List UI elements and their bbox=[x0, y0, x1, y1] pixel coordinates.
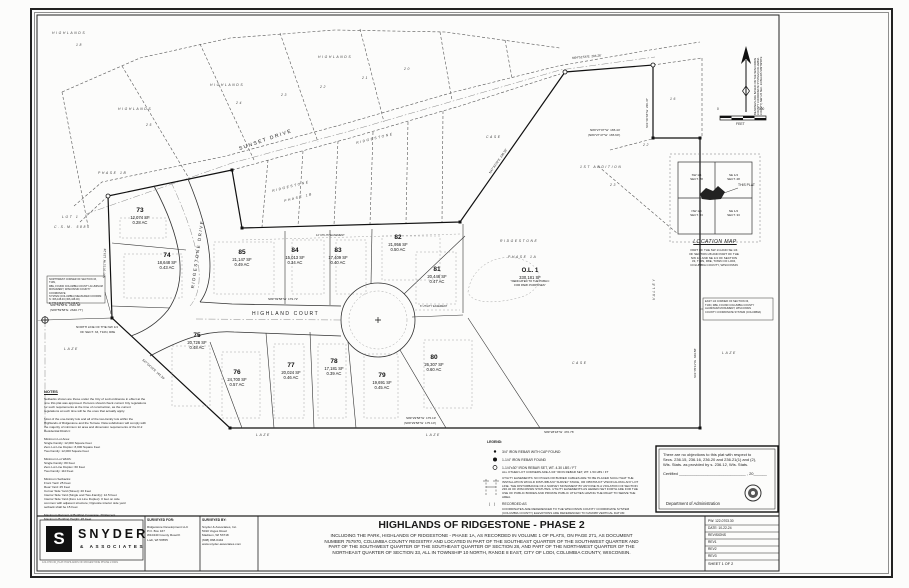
bearing-label: S89°29'58"W 175.19' bbox=[406, 416, 436, 420]
plat-title: HIGHLANDS OF RIDGESTONE - PHASE 2 bbox=[260, 519, 703, 531]
legend-symbols bbox=[483, 450, 499, 495]
legend-utility-easement-note: UTILITY EASEMENTS: NO POLES OR BURIED CA… bbox=[502, 477, 652, 500]
adjacent-plat-label: HIGHLANDS bbox=[210, 84, 244, 88]
adjacent-lot-number: 16 bbox=[670, 98, 677, 102]
this-plat-label: THIS PLAT bbox=[738, 184, 755, 188]
park-phase-label: PHASE 1A bbox=[508, 256, 537, 260]
bearing-label: N89°27'07"W 165.44' bbox=[590, 128, 620, 132]
lot-number: 80 bbox=[406, 354, 462, 362]
lot-80-label: 8026,307 SF0.60 AC bbox=[406, 354, 462, 372]
plat-sheet: SUNSET DRIVE RIDGESTONE DRIVE HIGHLAND C… bbox=[0, 0, 909, 588]
bearing-label: (N89°27'47"W 165.60') bbox=[588, 133, 620, 137]
lot-number: 84 bbox=[267, 247, 323, 255]
certification-text: There are no objections to this plat wit… bbox=[663, 452, 773, 468]
section-line-label: OF SECT. 33, T10N, R8E bbox=[80, 330, 115, 334]
bearing-label: S89°28'18"W 470.76' bbox=[544, 430, 574, 434]
certification-signature-line: Certified ______________________________… bbox=[663, 472, 767, 477]
firm-name: SNYDER bbox=[78, 527, 148, 541]
lot-area-ac: 0.50 AC bbox=[370, 247, 426, 252]
adjacent-lot-number: 22 bbox=[643, 144, 650, 148]
plat-subtitle: INCLUDING THE PARK, HIGHLANDS OF RIDGEST… bbox=[260, 533, 703, 556]
lot-number: 74 bbox=[139, 252, 195, 260]
lot-area-ac: 0.34 AC bbox=[267, 260, 323, 265]
adjacent-parcel-label: LOT 1 bbox=[62, 216, 79, 220]
rebar-set-icon bbox=[493, 466, 497, 470]
bearing-label: (S89°59'58"E 2640.77') bbox=[50, 308, 83, 312]
surveyed-by-label: SURVEYED BY: bbox=[202, 519, 226, 523]
lot-84-label: 8415,013 SF0.34 AC bbox=[267, 247, 323, 265]
park-plat-label: RIDGESTONE bbox=[500, 240, 538, 244]
lot-area-ac: 0.57 AC bbox=[209, 382, 265, 387]
legend-item-rebar-found: 1-1/4" IRON REBAR FOUND bbox=[502, 458, 546, 462]
lot-79-label: 7919,691 SF0.45 AC bbox=[354, 372, 410, 390]
lot-area-ac: 0.60 AC bbox=[406, 367, 462, 372]
project-number: PW: 122-0703.30 bbox=[708, 519, 734, 523]
adjacent-phase-label: PHASE 1B bbox=[98, 172, 127, 176]
recorded-as-symbol: ( ) bbox=[489, 502, 495, 506]
adjacent-plat-label: HIGHLANDS bbox=[52, 32, 86, 36]
adjacent-owner-label: LAZE bbox=[722, 352, 737, 356]
easement-label: 6' UTILITY EASEMENT bbox=[420, 305, 447, 308]
location-map-title: LOCATION MAP bbox=[678, 240, 752, 246]
surveyed-by-address: Snyder & Associates, Inc. 5010 Voges Roa… bbox=[202, 525, 256, 546]
plat-date: DATE: 10-22-24 bbox=[708, 526, 732, 530]
adjacent-plat-label: 1ST ADDITION bbox=[580, 166, 622, 170]
adjacent-owner-label: CASE bbox=[486, 136, 502, 140]
adjacent-lot-number: 18 bbox=[76, 44, 83, 48]
easement-detail-diagram bbox=[483, 479, 499, 495]
sheet-number: SHEET 1 OF 2 bbox=[708, 562, 733, 566]
notes-body: Setbacks shown are those under the City … bbox=[44, 397, 156, 521]
east-corner-monument-note: EAST 1/4 CORNER OF SECTION 33, T10N, R8E… bbox=[705, 300, 772, 314]
location-map-caption: PART OF THE SW 1/4 AND SE 1/4 OF SECTION… bbox=[664, 249, 764, 268]
adjacent-lot-number: 23 bbox=[281, 94, 288, 98]
scale-bar bbox=[720, 116, 766, 120]
adjacent-plat-label: HIGHLANDS bbox=[318, 56, 352, 60]
outlot-dedication-note: "DEDICATED TO THE PUBLIC FOR PARK PURPOS… bbox=[498, 280, 562, 287]
lot-area-ac: 0.43 AC bbox=[139, 265, 195, 270]
this-plat-shape bbox=[700, 186, 725, 200]
street-label-highland: HIGHLAND COURT bbox=[252, 312, 319, 318]
legend-item-rebar-set-2: ALL OTHER LOT CORNERS ARE A 3/4" IRON RE… bbox=[502, 470, 608, 474]
legend-title: LEGEND: bbox=[487, 440, 502, 444]
locmap-cell-nw33: NW 1/4 SECT. 33 bbox=[677, 210, 717, 217]
adjacent-plat-label: HIGHLANDS bbox=[118, 108, 152, 112]
adjacent-owner-label: LAZE bbox=[64, 348, 79, 352]
adjacent-owner-label: VALLEY bbox=[653, 278, 657, 300]
locmap-cell-se28: SE 1/4 SECT. 28 bbox=[714, 174, 754, 181]
north-arrow bbox=[741, 46, 751, 112]
lot-81-label: 8120,446 SF0.47 AC bbox=[409, 266, 465, 284]
lot-number: 85 bbox=[214, 249, 270, 257]
lot-area-ac: 0.48 AC bbox=[169, 345, 225, 350]
bearing-basis-note: BEARINGS ARE BASED ON THE WISCONSIN COUN… bbox=[754, 55, 764, 115]
snyder-logo-icon: S bbox=[46, 526, 72, 552]
revision-2: REV2 bbox=[708, 547, 717, 551]
adjacent-owner-label: CASE bbox=[572, 362, 588, 366]
bearing-label: S89°39'58"W 179.72' bbox=[268, 297, 298, 301]
legend-item-rebar-set: 1-1/4"x30" IRON REBAR SET, WT. 4.30 LBS … bbox=[502, 466, 576, 470]
locmap-cell-ne33: NE 1/4 SECT. 33 bbox=[714, 210, 754, 217]
scale-unit-label: FEET bbox=[736, 123, 745, 127]
surveyed-for-address: Ridgestone Development LLC P.O. Box 167 … bbox=[147, 525, 197, 542]
locmap-cell-sw28: SW 1/4 SECT. 28 bbox=[677, 174, 717, 181]
adjacent-lot-number: 24 bbox=[236, 102, 243, 106]
outlot-1-label: O.L. 1 330,181 SF "DEDICATED TO THE PUBL… bbox=[498, 268, 562, 287]
adjacent-lot-number: 20 bbox=[404, 68, 411, 72]
adjacent-owner-label: LAZE bbox=[426, 434, 441, 438]
bearing-label: (S89°29'58"W 175.10') bbox=[404, 421, 436, 425]
lot-82-label: 8221,956 SF0.50 AC bbox=[370, 234, 426, 252]
lot-area-ac: 0.47 AC bbox=[409, 279, 465, 284]
revision-1: REV1 bbox=[708, 540, 717, 544]
lot-85-label: 8521,147 SF0.49 AC bbox=[214, 249, 270, 267]
certification-department: Department of Administration bbox=[666, 502, 720, 507]
outlot-name: O.L. 1 bbox=[498, 268, 562, 275]
legend-item-recorded-as: RECORDED AS bbox=[502, 502, 527, 506]
lot-75-label: 7520,726 SF0.48 AC bbox=[169, 332, 225, 350]
lot-number: 82 bbox=[370, 234, 426, 242]
section-line-label: NORTH LINE OF THE NW 1/4 bbox=[76, 325, 118, 329]
adjacent-owner-label: LAZE bbox=[256, 434, 271, 438]
bearing-label: S01°00'33"W 220.47' bbox=[645, 98, 649, 128]
lot-area-ac: 0.28 AC bbox=[112, 220, 168, 225]
lot-area-ac: 0.45 AC bbox=[354, 385, 410, 390]
adjacent-lot-number: 22 bbox=[320, 86, 327, 90]
lot-73-label: 7312,074 SF0.28 AC bbox=[112, 207, 168, 225]
lot-number: 73 bbox=[112, 207, 168, 215]
nw-corner-monument-note: NORTHWEST CORNER OF SECTION 33, T10N, R8… bbox=[49, 278, 104, 305]
lot-number: 75 bbox=[169, 332, 225, 340]
bearing-label: S01°05'11"W 329.58' bbox=[693, 348, 697, 378]
legend-coordinates-note: COORDINATES ARE REFERENCED TO THE WISCON… bbox=[502, 508, 652, 516]
lot-76-label: 7624,700 SF0.57 AC bbox=[209, 369, 265, 387]
lot-number: 79 bbox=[354, 372, 410, 380]
scale-hundred-label: 100 bbox=[759, 108, 764, 112]
notes-title: NOTES bbox=[44, 390, 58, 395]
plot-file-reference: 122-0703.30_PLAT-HIGHLANDS OF RIDGESTONE… bbox=[42, 562, 118, 565]
scale-zero-label: 0 bbox=[717, 108, 719, 112]
surveyed-for-label: SURVEYED FOR: bbox=[147, 519, 174, 523]
adjacent-lot-number: 25 bbox=[146, 124, 153, 128]
rebar-found-icon bbox=[493, 458, 497, 462]
lot-74-label: 7418,648 SF0.43 AC bbox=[139, 252, 195, 270]
rebar-cap-found-icon bbox=[494, 450, 496, 452]
revisions-label: REVISIONS bbox=[708, 533, 726, 537]
lot-area-ac: 0.49 AC bbox=[214, 262, 270, 267]
adjacent-lot-number: 23 bbox=[610, 184, 617, 188]
lot-number: 76 bbox=[209, 369, 265, 377]
firm-name-sub: & ASSOCIATES bbox=[80, 544, 145, 549]
adjacent-parcel-label: C.S.M. 5885 bbox=[54, 226, 90, 230]
adjacent-lot-number: 21 bbox=[362, 77, 369, 81]
lot-number: 78 bbox=[306, 358, 362, 366]
lot-number: 81 bbox=[409, 266, 465, 274]
easement-label: 12' UTILITY EASEMENT bbox=[316, 234, 345, 237]
location-map-graphic bbox=[670, 154, 760, 242]
legend-item-rebar-cap-found: 3/4" IRON REBAR WITH CAP FOUND bbox=[502, 450, 560, 454]
revision-3: REV3 bbox=[708, 554, 717, 558]
